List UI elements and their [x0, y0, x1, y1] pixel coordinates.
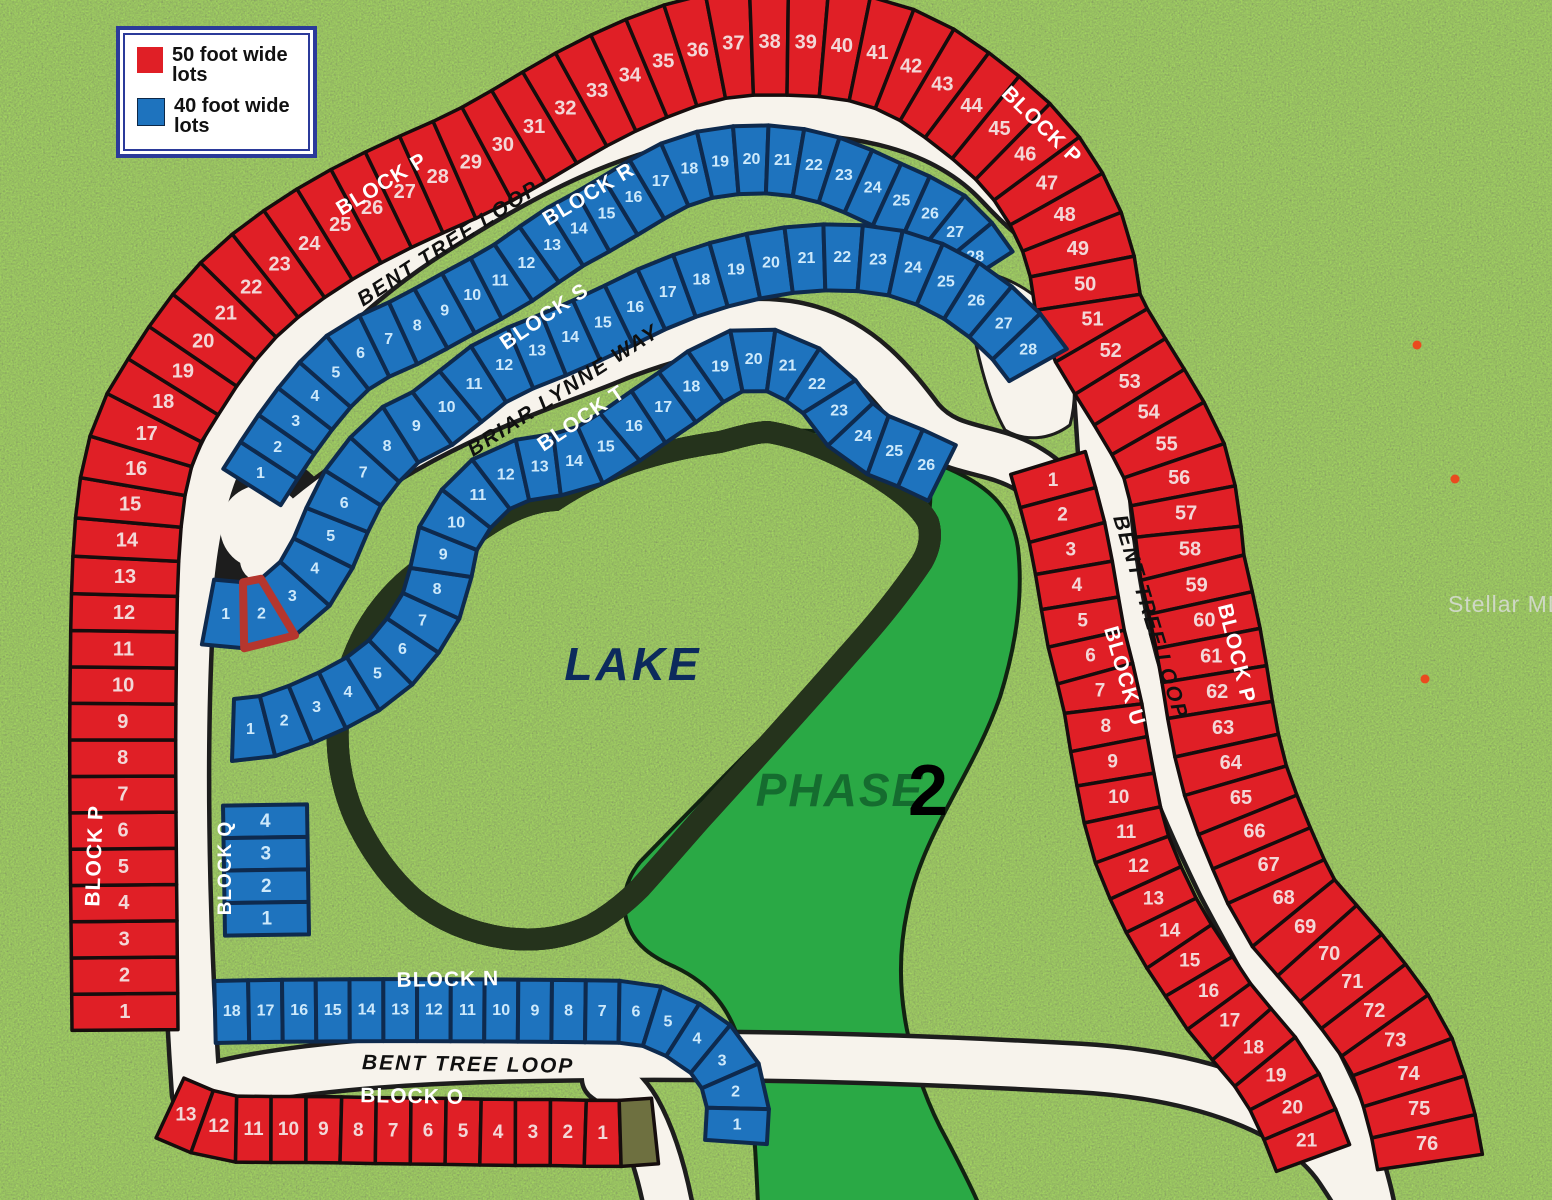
lot-number-P-71: 71 — [1341, 971, 1363, 993]
lot-number-U-3: 3 — [1066, 540, 1077, 561]
lot-number-S-11: 11 — [466, 376, 483, 393]
lot-number-R-7: 7 — [384, 331, 393, 348]
lot-number-T-25: 25 — [885, 443, 903, 460]
lot-number-P-3: 3 — [119, 928, 130, 950]
lot-number-N-2: 2 — [731, 1083, 740, 1100]
lot-number-U-16: 16 — [1198, 981, 1219, 1002]
lot-number-Q-4: 4 — [260, 811, 271, 832]
lot-number-O-5: 5 — [458, 1121, 469, 1142]
lot-number-N-8: 8 — [564, 1003, 573, 1020]
lot-number-O-10: 10 — [278, 1119, 299, 1140]
lot-number-P-28: 28 — [427, 166, 449, 188]
lot-number-P-53: 53 — [1119, 371, 1141, 393]
lot-number-U-4: 4 — [1072, 575, 1083, 596]
lot-number-Q-1: 1 — [262, 908, 273, 929]
lot-number-R-8: 8 — [413, 318, 422, 335]
lot-number-O-8: 8 — [353, 1120, 364, 1141]
lot-number-S-5: 5 — [326, 528, 335, 545]
lot-number-P-64: 64 — [1220, 752, 1243, 774]
lot-number-T-15: 15 — [597, 439, 615, 456]
lot-number-U-9: 9 — [1107, 751, 1118, 772]
lot-number-P-43: 43 — [931, 74, 953, 96]
lot-number-P-31: 31 — [523, 116, 545, 138]
block-n-label: BLOCK N — [396, 967, 499, 992]
lot-number-R-6: 6 — [356, 345, 365, 362]
lot-number-S-27: 27 — [995, 315, 1013, 332]
lot-number-P-7: 7 — [117, 783, 128, 805]
lot-number-O-3: 3 — [528, 1122, 539, 1143]
lot-number-R-15: 15 — [598, 205, 616, 222]
block-q-label: BLOCK Q — [215, 821, 236, 916]
lot-number-R-24: 24 — [864, 180, 882, 197]
lot-number-T-16: 16 — [625, 418, 643, 435]
lot-number-P-32: 32 — [554, 98, 576, 120]
lot-number-N-6: 6 — [631, 1004, 640, 1021]
lot-number-P-4: 4 — [118, 892, 130, 914]
lot-number-P-22: 22 — [240, 276, 262, 298]
lot-number-U-7: 7 — [1095, 681, 1106, 702]
lot-number-N-13: 13 — [391, 1002, 409, 1019]
legend-item-50ft: 50 foot wide lots — [137, 45, 294, 86]
lot-number-P-49: 49 — [1067, 238, 1089, 260]
lot-number-P-34: 34 — [619, 65, 642, 87]
lot-number-P-72: 72 — [1363, 1000, 1385, 1022]
lot-number-P-36: 36 — [687, 39, 709, 61]
lot-number-P-1: 1 — [119, 1001, 130, 1023]
lot-number-S-14: 14 — [561, 329, 579, 346]
lot-number-S-20: 20 — [762, 254, 780, 271]
lot-number-N-7: 7 — [598, 1003, 607, 1020]
lot-number-P-61: 61 — [1200, 645, 1222, 667]
lot-number-U-5: 5 — [1077, 611, 1088, 632]
legend-label-50ft: 50 foot wide lots — [172, 45, 292, 86]
lot-number-O-9: 9 — [318, 1119, 329, 1140]
lot-number-P-15: 15 — [119, 494, 141, 516]
lot-number-U-13: 13 — [1143, 889, 1164, 910]
lot-number-N-11: 11 — [459, 1002, 476, 1019]
lake-label: LAKE — [564, 638, 701, 690]
lot-number-P-30: 30 — [492, 134, 514, 156]
lot-number-P-46: 46 — [1014, 144, 1036, 166]
lot-number-N-10: 10 — [492, 1002, 510, 1019]
lot-number-P-5: 5 — [118, 856, 129, 878]
lot-number-T-10: 10 — [447, 515, 465, 532]
lot-number-T-12: 12 — [497, 466, 515, 483]
lot-number-T-4: 4 — [344, 684, 353, 701]
lot-number-O-4: 4 — [493, 1122, 504, 1143]
lot-number-P-24: 24 — [298, 233, 321, 255]
lot-number-U-8: 8 — [1101, 716, 1112, 737]
lot-number-U-18: 18 — [1243, 1037, 1264, 1058]
lot-number-P-66: 66 — [1243, 821, 1265, 843]
lot-number-T-13: 13 — [531, 459, 549, 476]
lot-number-O-12: 12 — [208, 1116, 229, 1137]
lot-number-P-62: 62 — [1206, 681, 1228, 703]
lot-number-T-21: 21 — [779, 357, 797, 374]
lot-number-R-19: 19 — [711, 153, 729, 170]
lot-number-S-25: 25 — [937, 274, 955, 291]
lot-number-P-2: 2 — [119, 965, 130, 987]
lot-number-R-18: 18 — [681, 161, 699, 178]
lot-number-T-8: 8 — [433, 581, 442, 598]
lot-number-S-9: 9 — [412, 418, 421, 435]
lot-number-S-15: 15 — [594, 314, 612, 331]
lot-number-P-19: 19 — [172, 361, 194, 383]
lot-number-P-52: 52 — [1100, 340, 1122, 362]
lot-number-P-65: 65 — [1230, 787, 1252, 809]
block-p-label-west: BLOCK P — [81, 805, 108, 907]
lot-number-S-10: 10 — [438, 399, 456, 416]
lot-number-U-6: 6 — [1085, 646, 1096, 667]
lot-number-P-47: 47 — [1036, 173, 1058, 195]
lot-number-N-16: 16 — [290, 1002, 308, 1019]
lot-number-R-25: 25 — [893, 193, 911, 210]
lot-number-U-10: 10 — [1108, 787, 1129, 808]
lot-number-P-67: 67 — [1258, 854, 1280, 876]
lot-number-R-4: 4 — [311, 388, 320, 405]
lot-number-U-12: 12 — [1128, 856, 1149, 877]
lot-number-R-17: 17 — [652, 173, 670, 190]
lot-number-P-75: 75 — [1408, 1098, 1430, 1120]
lot-number-T-14: 14 — [565, 453, 583, 470]
lot-number-P-73: 73 — [1384, 1029, 1406, 1051]
lot-number-P-14: 14 — [116, 530, 139, 552]
lot-number-R-23: 23 — [835, 167, 853, 184]
lot-number-R-2: 2 — [273, 439, 282, 456]
lot-number-Q-2: 2 — [261, 876, 272, 897]
lot-number-N-14: 14 — [358, 1002, 376, 1019]
lot-number-R-14: 14 — [570, 221, 588, 238]
lot-number-O-7: 7 — [388, 1120, 399, 1141]
lot-number-U-1: 1 — [1048, 470, 1059, 491]
lot-number-P-13: 13 — [114, 566, 136, 588]
lot-number-S-28: 28 — [1019, 342, 1037, 359]
lot-number-T-20: 20 — [745, 351, 763, 368]
legend: 50 foot wide lots 40 foot wide lots — [116, 26, 317, 158]
lot-number-P-42: 42 — [900, 55, 922, 77]
lot-number-S-24: 24 — [904, 259, 922, 276]
lot-O-unnumbered — [619, 1098, 658, 1166]
lot-number-N-15: 15 — [324, 1002, 342, 1019]
lot-number-T-5: 5 — [373, 665, 382, 682]
lot-number-T-11: 11 — [469, 487, 486, 504]
lot-number-T-6: 6 — [398, 641, 407, 658]
lot-number-S-19: 19 — [727, 262, 745, 279]
lot-number-R-9: 9 — [440, 302, 449, 319]
lot-number-P-35: 35 — [652, 51, 674, 73]
street-bent-tree-loop-south: BENT TREE LOOP — [362, 1051, 575, 1078]
plat-map: 1234567891011121314151617181920212223242… — [0, 0, 1552, 1200]
lot-number-P-37: 37 — [722, 33, 744, 55]
lot-number-U-19: 19 — [1265, 1066, 1286, 1087]
lot-number-T-1: 1 — [246, 721, 255, 738]
lot-number-P-8: 8 — [117, 747, 128, 769]
lot-number-S-23: 23 — [869, 252, 887, 269]
lot-number-R-1: 1 — [256, 465, 265, 482]
lot-number-N-3: 3 — [718, 1053, 727, 1070]
lot-number-R-16: 16 — [625, 189, 643, 206]
lot-number-R-22: 22 — [805, 157, 823, 174]
lot-number-T-9: 9 — [439, 547, 448, 564]
lot-number-T-7: 7 — [418, 613, 427, 630]
lot-number-P-76: 76 — [1416, 1133, 1438, 1155]
lot-number-T-23: 23 — [830, 403, 848, 420]
lot-number-P-11: 11 — [113, 638, 134, 660]
lot-number-R-12: 12 — [518, 255, 536, 272]
lot-number-P-16: 16 — [125, 458, 147, 480]
legend-swatch-red — [137, 47, 163, 73]
lot-number-N-5: 5 — [664, 1014, 673, 1031]
lot-number-S-16: 16 — [626, 299, 644, 316]
lot-number-O-13: 13 — [175, 1105, 196, 1126]
lot-number-S-21: 21 — [798, 250, 816, 267]
lot-number-P-51: 51 — [1081, 309, 1103, 331]
legend-label-40ft: 40 foot wide lots — [174, 96, 294, 137]
lot-number-R-10: 10 — [463, 287, 481, 304]
lot-number-P-9: 9 — [117, 711, 128, 733]
lot-number-P-44: 44 — [960, 95, 983, 117]
lot-number-S-22: 22 — [833, 249, 851, 266]
lot-number-S-18: 18 — [693, 272, 711, 289]
lot-number-R-21: 21 — [774, 152, 792, 169]
lot-number-P-70: 70 — [1318, 943, 1340, 965]
lot-number-T-22: 22 — [808, 376, 826, 393]
lot-number-U-11: 11 — [1116, 822, 1137, 843]
lot-number-P-41: 41 — [866, 42, 888, 64]
lot-number-S-12: 12 — [495, 357, 513, 374]
watermark: Stellar MLS — [1448, 591, 1552, 617]
lot-number-O-11: 11 — [243, 1119, 264, 1140]
phase-2-label: PHASE — [756, 764, 924, 816]
lot-number-P-38: 38 — [758, 31, 780, 53]
lot-number-P-74: 74 — [1397, 1063, 1420, 1085]
lot-number-N-18: 18 — [223, 1003, 241, 1020]
lot-number-R-20: 20 — [743, 151, 761, 168]
lot-number-U-20: 20 — [1282, 1098, 1303, 1119]
lot-number-P-10: 10 — [112, 675, 134, 697]
lot-number-S-7: 7 — [359, 465, 368, 482]
lot-number-P-23: 23 — [268, 254, 290, 276]
lot-number-P-69: 69 — [1294, 916, 1316, 938]
lot-number-U-2: 2 — [1057, 505, 1068, 526]
lot-number-P-55: 55 — [1155, 433, 1177, 455]
lot-number-P-45: 45 — [988, 118, 1010, 140]
lot-number-P-68: 68 — [1273, 887, 1295, 909]
lot-number-R-27: 27 — [946, 224, 964, 241]
lot-number-R-3: 3 — [291, 413, 300, 430]
lot-number-O-1: 1 — [597, 1123, 608, 1144]
lot-number-N-9: 9 — [530, 1002, 539, 1019]
lot-number-S-1: 1 — [221, 606, 230, 623]
lot-number-U-17: 17 — [1219, 1010, 1240, 1031]
lot-number-S-4: 4 — [310, 560, 319, 577]
lot-number-T-19: 19 — [711, 358, 729, 375]
lot-number-P-33: 33 — [586, 80, 608, 102]
lot-number-T-18: 18 — [683, 378, 701, 395]
lot-number-R-5: 5 — [331, 365, 340, 382]
lot-number-S-26: 26 — [967, 292, 985, 309]
lot-number-P-50: 50 — [1074, 273, 1096, 295]
lot-number-T-26: 26 — [917, 457, 935, 474]
lot-number-T-17: 17 — [654, 399, 672, 416]
lot-number-T-24: 24 — [854, 428, 872, 445]
lot-number-S-2: 2 — [257, 606, 266, 623]
lot-number-R-26: 26 — [921, 206, 939, 223]
plat-map-screenshot: 1234567891011121314151617181920212223242… — [0, 0, 1552, 1200]
lot-number-P-57: 57 — [1175, 503, 1197, 525]
lot-number-P-59: 59 — [1185, 574, 1207, 596]
lot-number-S-6: 6 — [340, 495, 349, 512]
lot-number-U-15: 15 — [1179, 951, 1201, 972]
lot-number-P-12: 12 — [113, 602, 135, 624]
lot-number-O-6: 6 — [423, 1121, 434, 1142]
lot-number-P-58: 58 — [1179, 539, 1201, 561]
lot-number-R-13: 13 — [543, 237, 561, 254]
lot-number-P-39: 39 — [795, 32, 817, 54]
lot-number-P-40: 40 — [831, 35, 853, 57]
lot-number-P-63: 63 — [1212, 717, 1234, 739]
legend-swatch-blue — [137, 98, 165, 126]
lot-number-U-21: 21 — [1296, 1131, 1318, 1152]
lot-number-P-6: 6 — [118, 820, 129, 842]
lot-number-P-54: 54 — [1138, 402, 1161, 424]
lot-number-P-56: 56 — [1168, 467, 1190, 489]
lot-number-S-13: 13 — [528, 343, 546, 360]
lot-number-P-18: 18 — [152, 391, 174, 413]
lot-number-S-17: 17 — [659, 284, 677, 301]
lot-number-P-60: 60 — [1193, 610, 1215, 632]
lot-number-P-21: 21 — [215, 302, 237, 324]
lot-number-U-14: 14 — [1159, 921, 1181, 942]
lot-number-N-12: 12 — [425, 1002, 443, 1019]
lot-number-S-3: 3 — [288, 588, 297, 605]
lot-number-O-2: 2 — [563, 1122, 574, 1143]
lot-number-N-1: 1 — [733, 1117, 742, 1134]
block-o-label: BLOCK O — [360, 1084, 464, 1109]
lot-number-T-2: 2 — [280, 712, 289, 729]
phase-2-number: 2 — [908, 751, 948, 831]
lot-number-S-8: 8 — [383, 438, 392, 455]
lot-number-P-29: 29 — [460, 151, 482, 173]
lot-number-P-48: 48 — [1054, 204, 1076, 226]
lot-number-P-20: 20 — [192, 331, 214, 353]
lot-number-N-17: 17 — [257, 1003, 275, 1020]
legend-item-40ft: 40 foot wide lots — [137, 96, 294, 137]
lot-number-Q-3: 3 — [261, 843, 272, 864]
lot-number-R-11: 11 — [492, 273, 509, 290]
lot-number-P-17: 17 — [136, 423, 158, 445]
lot-number-N-4: 4 — [692, 1031, 701, 1048]
lot-number-T-3: 3 — [312, 699, 321, 716]
